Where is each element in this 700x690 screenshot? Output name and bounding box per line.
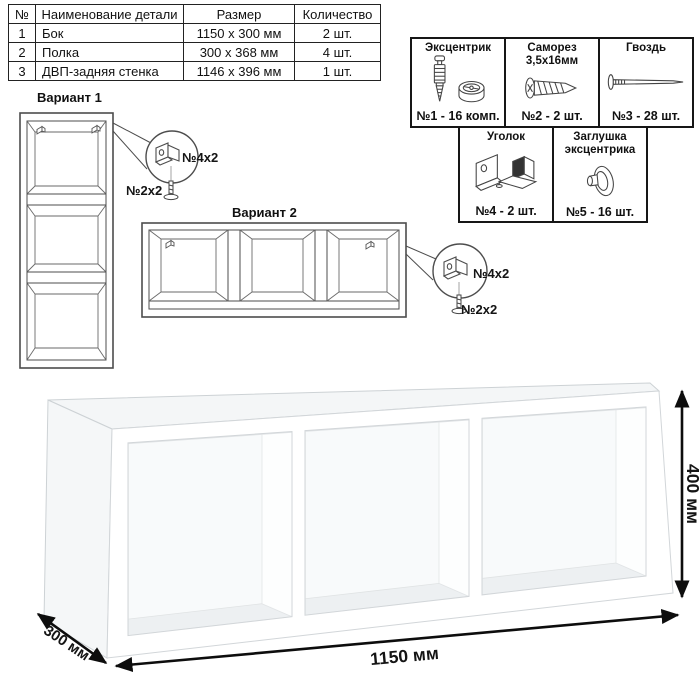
cell-size: 300 x 368 мм (184, 43, 295, 62)
hardware-caption: №2 - 2 шт. (521, 109, 582, 126)
cell-num: 3 (9, 62, 36, 81)
nail-icon (605, 55, 687, 109)
variant1-bracket-label: №4х2 (182, 150, 218, 165)
hardware-title: Саморез 3,5х16мм (506, 39, 598, 68)
cell-name: ДВП-задняя стенка (36, 62, 184, 81)
hardware-item-nail: Гвоздь №3 - 28 шт. (598, 39, 692, 126)
variant2-bracket-label: №4х2 (473, 266, 509, 281)
eccentric-cap-icon (577, 157, 623, 205)
cell-size: 1146 x 396 мм (184, 62, 295, 81)
hardware-box-row1: Эксцентрик (410, 37, 694, 128)
variant2-wireframe (142, 223, 406, 317)
col-header-num: № (9, 5, 36, 24)
cell-qty: 2 шт. (295, 24, 381, 43)
dimension-height: 400 мм (682, 391, 700, 597)
cell-name: Полка (36, 43, 184, 62)
variant1-wireframe (20, 113, 113, 368)
hardware-item-screw: Саморез 3,5х16мм №2 - 2 шт. (504, 39, 598, 126)
cell-qty: 1 шт. (295, 62, 381, 81)
main-shelf-drawing: 400 мм 1150 мм 300 мм (30, 378, 700, 680)
eccentric-cam-icon (421, 55, 495, 109)
parts-table: № Наименование детали Размер Количество … (8, 4, 381, 81)
variant2-callout: №4х2 №2х2 (406, 244, 509, 317)
screw-icon (164, 181, 178, 200)
shelf-body (44, 383, 673, 658)
screw-icon (521, 68, 583, 109)
hardware-caption: №5 - 16 шт. (566, 205, 634, 222)
hardware-title: Гвоздь (626, 39, 666, 55)
variant2-drawing: №4х2 №2х2 (133, 198, 533, 336)
variant1-callout: №4х2 №2х2 (113, 123, 218, 200)
table-row: 2 Полка 300 x 368 мм 4 шт. (9, 43, 381, 62)
corner-bracket-icon (470, 144, 542, 204)
cell-qty: 4 шт. (295, 43, 381, 62)
assembly-instruction-sheet: № Наименование детали Размер Количество … (0, 0, 700, 690)
variant1-screw-label: №2х2 (126, 183, 162, 198)
hardware-caption: №1 - 16 комп. (416, 109, 499, 126)
hardware-title: Заглушка эксцентрика (554, 128, 646, 157)
col-header-size: Размер (184, 5, 295, 24)
table-row: 3 ДВП-задняя стенка 1146 x 396 мм 1 шт. (9, 62, 381, 81)
width-dimension-label: 1150 мм (369, 643, 439, 669)
col-header-qty: Количество (295, 5, 381, 24)
hardware-title: Эксцентрик (425, 39, 491, 55)
hardware-caption: №3 - 28 шт. (612, 109, 680, 126)
height-dimension-label: 400 мм (683, 464, 700, 524)
cell-name: Бок (36, 24, 184, 43)
col-header-name: Наименование детали (36, 5, 184, 24)
variant2-screw-label: №2х2 (461, 302, 497, 317)
hardware-title: Уголок (487, 128, 525, 144)
hardware-item-eccentric: Эксцентрик (412, 39, 504, 126)
parts-table-header-row: № Наименование детали Размер Количество (9, 5, 381, 24)
cell-num: 1 (9, 24, 36, 43)
cell-size: 1150 x 300 мм (184, 24, 295, 43)
cell-num: 2 (9, 43, 36, 62)
table-row: 1 Бок 1150 x 300 мм 2 шт. (9, 24, 381, 43)
hardware-item-eccentric-cap: Заглушка эксцентрика №5 - 16 шт. (552, 128, 646, 221)
